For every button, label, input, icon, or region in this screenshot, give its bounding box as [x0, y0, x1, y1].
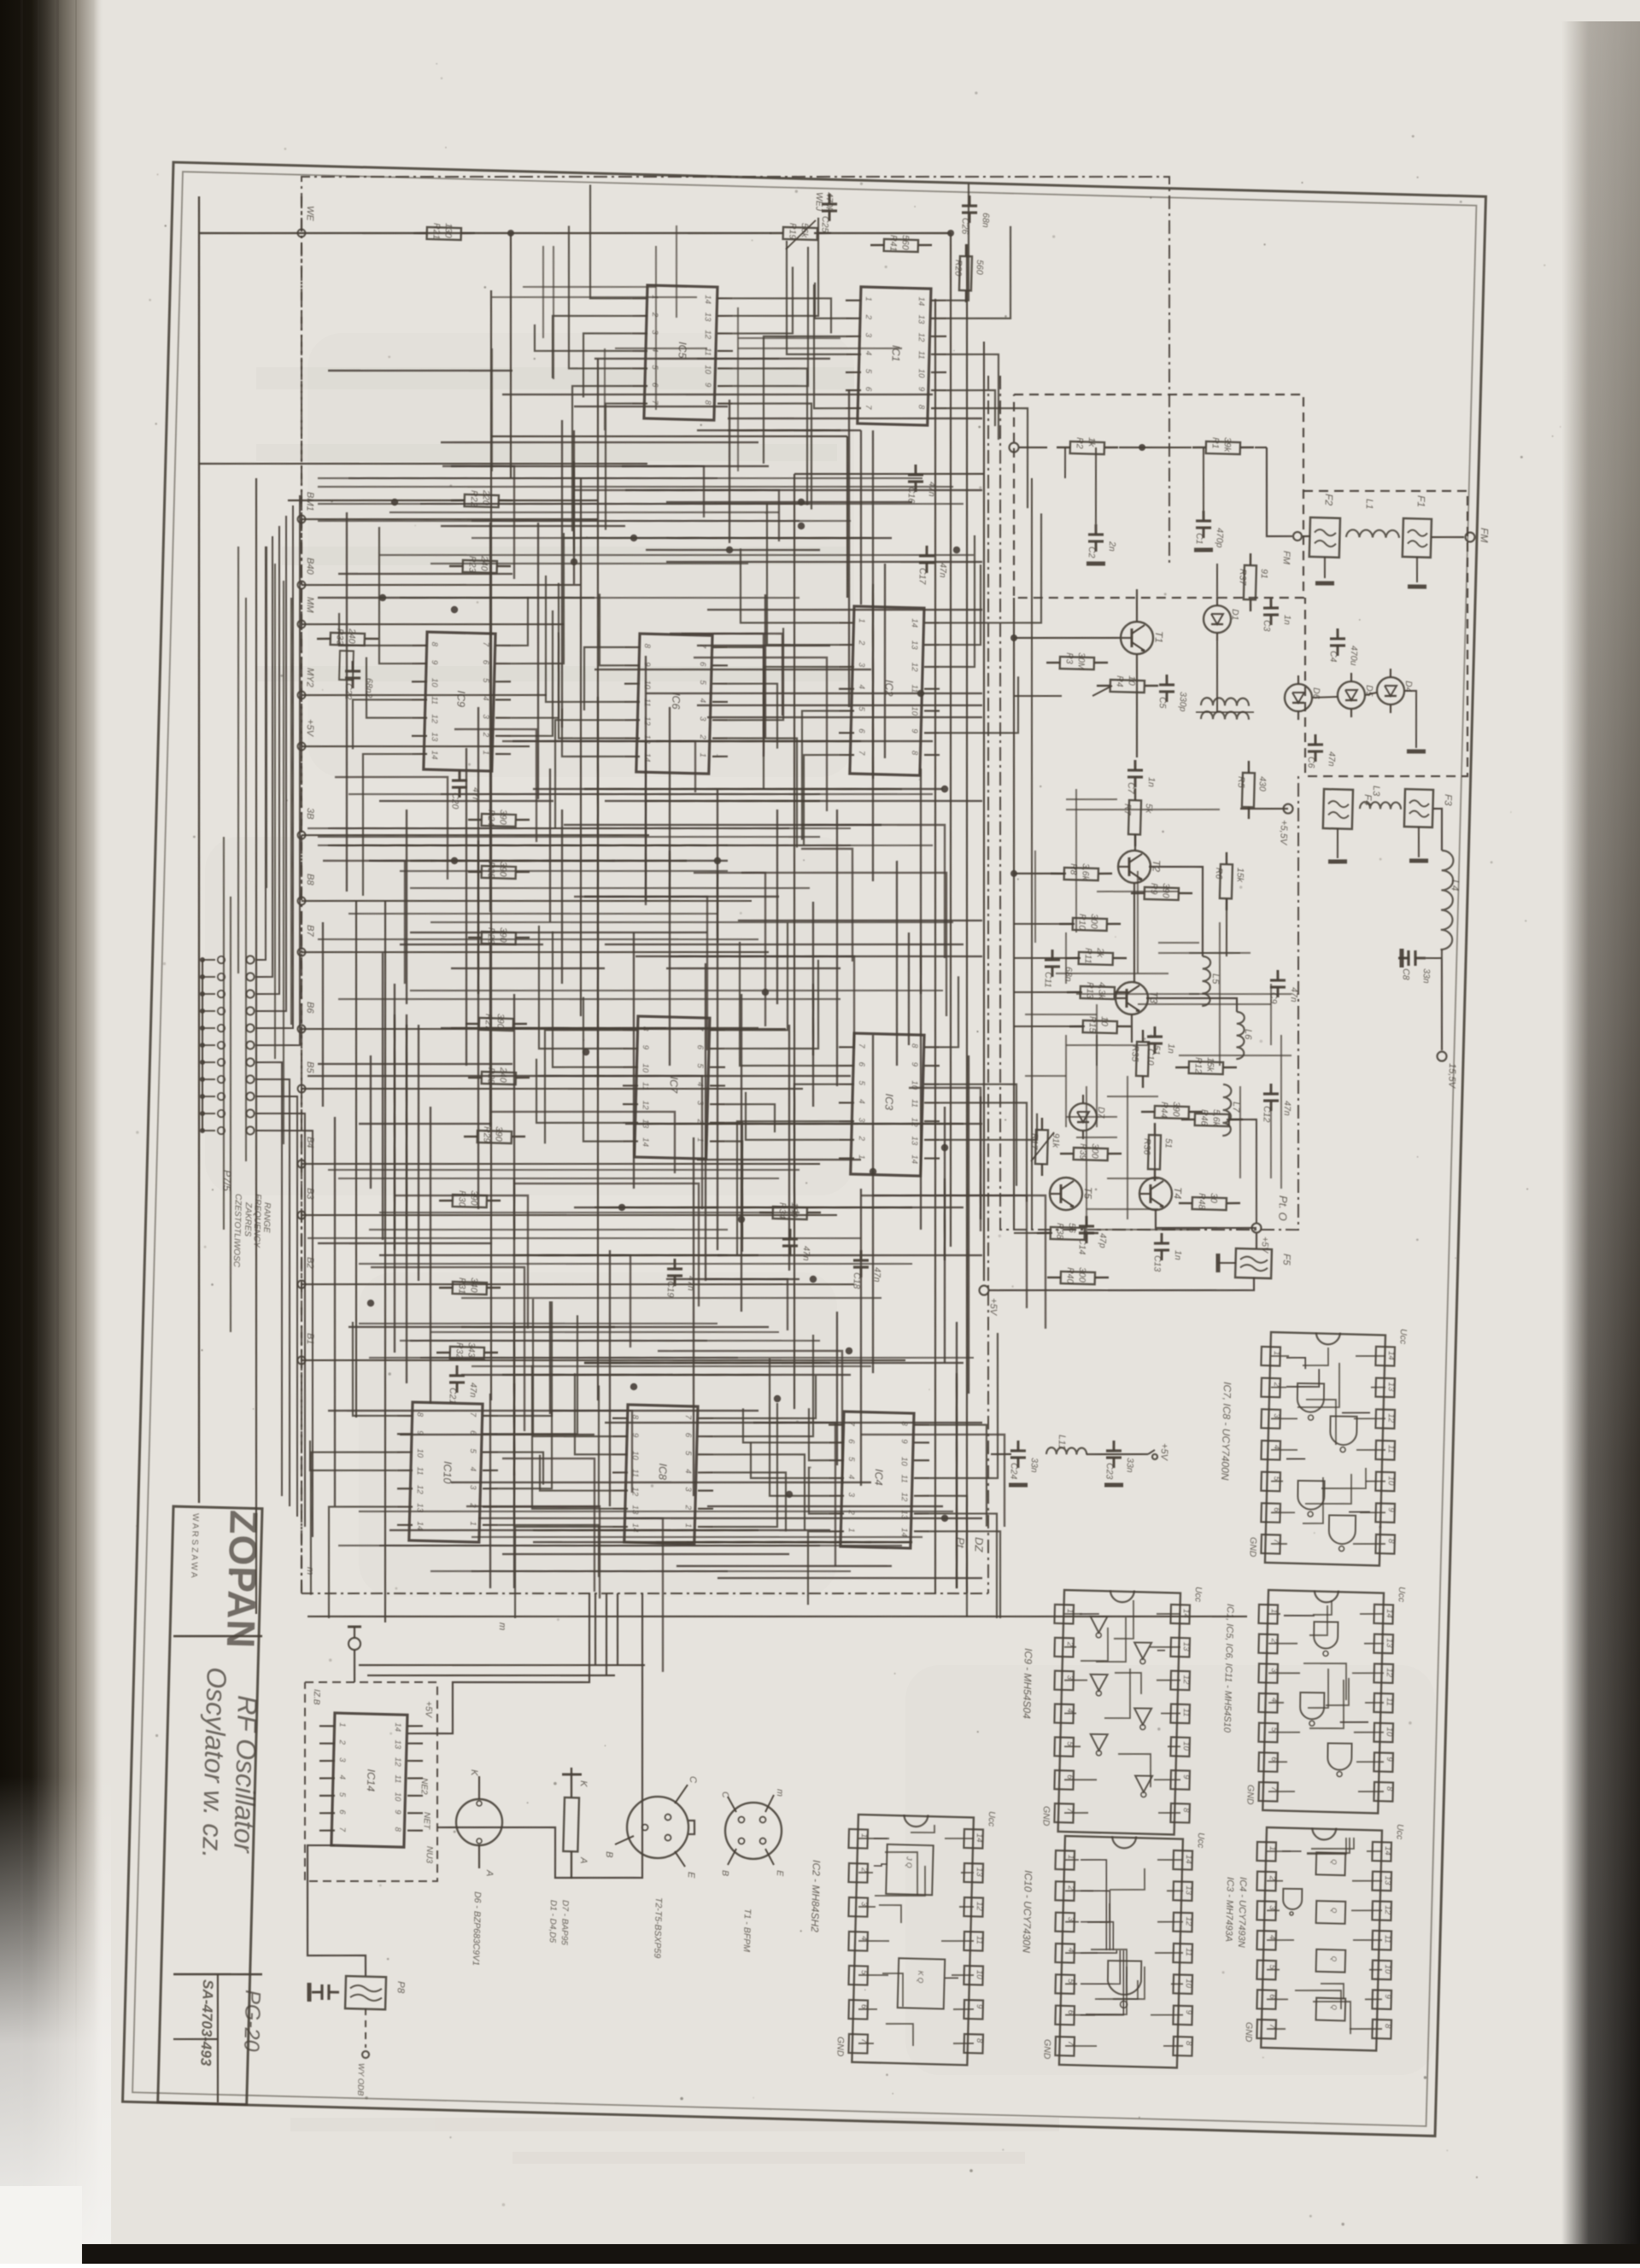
svg-text:14: 14: [641, 1137, 650, 1147]
svg-text:IC3 - MH7493A: IC3 - MH7493A: [1223, 1877, 1235, 1942]
svg-text:14: 14: [1184, 1855, 1193, 1864]
svg-text:1k: 1k: [1086, 437, 1097, 447]
svg-text:11: 11: [393, 1774, 402, 1783]
svg-text:10: 10: [917, 369, 926, 379]
svg-text:1: 1: [846, 1528, 856, 1533]
svg-text:R4: R4: [1115, 675, 1125, 687]
svg-text:Ucc: Ucc: [1397, 1329, 1408, 1345]
svg-text:C13: C13: [1151, 1255, 1163, 1272]
svg-text:C: C: [720, 1792, 730, 1798]
svg-text:R11: R11: [1082, 948, 1092, 964]
svg-text:R36: R36: [1141, 1138, 1152, 1155]
svg-text:IC14: IC14: [365, 1768, 378, 1792]
svg-text:3B: 3B: [305, 808, 315, 820]
svg-text:9: 9: [1181, 1774, 1191, 1780]
svg-text:9: 9: [703, 383, 712, 388]
svg-text:4: 4: [481, 696, 490, 701]
svg-text:IZ.B: IZ.B: [312, 1689, 321, 1705]
svg-text:9: 9: [975, 2004, 984, 2009]
svg-text:GND: GND: [1243, 2022, 1254, 2043]
svg-text:R44: R44: [1159, 1102, 1170, 1119]
svg-text:13: 13: [630, 1505, 640, 1515]
svg-text:7: 7: [481, 642, 490, 647]
svg-text:C17: C17: [917, 568, 928, 586]
svg-text:R40: R40: [1064, 1267, 1075, 1284]
svg-text:A: A: [578, 1856, 589, 1864]
svg-text:3: 3: [857, 1118, 866, 1123]
svg-text:Ucc: Ucc: [1193, 1587, 1204, 1603]
svg-text:8: 8: [917, 405, 926, 410]
svg-text:4: 4: [683, 1469, 693, 1474]
svg-text:Q: Q: [1330, 1956, 1338, 1961]
svg-text:2: 2: [481, 732, 490, 738]
svg-text:560: 560: [975, 260, 985, 275]
svg-text:10: 10: [910, 706, 919, 716]
svg-text:11: 11: [899, 1475, 909, 1483]
svg-text:6: 6: [846, 1439, 856, 1444]
svg-text:11: 11: [415, 1467, 425, 1476]
svg-text:7: 7: [650, 400, 659, 405]
svg-text:MM: MM: [304, 597, 314, 613]
svg-text:R34: R34: [777, 1202, 788, 1219]
svg-text:1: 1: [1065, 1609, 1075, 1614]
svg-text:10: 10: [641, 1063, 650, 1073]
svg-text:13: 13: [1386, 1382, 1396, 1393]
svg-text:14: 14: [393, 1722, 402, 1732]
svg-text:14: 14: [899, 1528, 909, 1537]
svg-text:1: 1: [864, 296, 873, 301]
svg-text:14: 14: [917, 296, 926, 306]
svg-text:IC1: IC1: [889, 345, 902, 362]
svg-text:1n: 1n: [1166, 1043, 1176, 1054]
svg-text:300: 300: [1090, 1143, 1100, 1159]
svg-text:L4: L4: [1450, 880, 1461, 891]
svg-text:C22: C22: [343, 683, 354, 700]
svg-text:390: 390: [498, 927, 508, 943]
svg-text:J Q: J Q: [905, 1856, 913, 1868]
svg-text:14: 14: [910, 618, 919, 628]
svg-text:NE2: NE2: [419, 1778, 429, 1795]
svg-text:IC10: IC10: [441, 1461, 454, 1484]
svg-text:6: 6: [695, 1045, 705, 1050]
svg-text:91: 91: [1259, 569, 1269, 579]
svg-text:C11: C11: [1043, 972, 1053, 988]
svg-text:L3: L3: [1371, 786, 1381, 797]
svg-text:C8: C8: [1401, 968, 1411, 980]
svg-text:2k: 2k: [1095, 947, 1105, 958]
svg-text:B: B: [720, 1870, 730, 1876]
svg-text:10: 10: [975, 1970, 984, 1980]
svg-text:7: 7: [683, 1415, 693, 1420]
svg-text:33n: 33n: [1125, 1458, 1135, 1473]
svg-text:R13: R13: [1085, 982, 1096, 999]
svg-text:IC2 - MH84SH2: IC2 - MH84SH2: [809, 1860, 823, 1932]
svg-text:13: 13: [1181, 1642, 1191, 1652]
svg-text:13: 13: [393, 1739, 402, 1750]
svg-text:39k: 39k: [1222, 437, 1233, 453]
svg-text:B40: B40: [304, 558, 315, 576]
svg-text:T1: T1: [1153, 631, 1165, 643]
svg-text:10: 10: [1383, 1965, 1392, 1975]
svg-text:F1: F1: [1415, 495, 1427, 507]
svg-text:SA-4703-493: SA-4703-493: [197, 1979, 216, 2066]
svg-text:C6: C6: [1306, 757, 1316, 769]
svg-text:13: 13: [1385, 1639, 1394, 1649]
svg-text:RF Oscillator: RF Oscillator: [228, 1695, 263, 1855]
svg-text:12: 12: [910, 1118, 919, 1128]
svg-text:WY ODB: WY ODB: [355, 2063, 366, 2096]
svg-text:12: 12: [917, 333, 926, 343]
svg-text:P8: P8: [395, 1981, 406, 1994]
svg-text:Q: Q: [1330, 1859, 1338, 1864]
svg-text:+5V: +5V: [1259, 1236, 1270, 1254]
svg-text:4: 4: [1272, 1445, 1281, 1450]
svg-text:1n: 1n: [1146, 777, 1157, 787]
svg-text:RANGE: RANGE: [261, 1202, 272, 1233]
svg-text:10: 10: [1386, 1476, 1396, 1487]
svg-text:+5V: +5V: [304, 719, 315, 738]
svg-text:W A R S Z A W A: W A R S Z A W A: [189, 1513, 200, 1578]
svg-text:9: 9: [1386, 1507, 1396, 1512]
svg-text:5: 5: [857, 1080, 866, 1085]
svg-text:IC4 - UCY7493N: IC4 - UCY7493N: [1236, 1877, 1248, 1948]
svg-text:m: m: [305, 1567, 315, 1575]
svg-text:IC4: IC4: [872, 1469, 885, 1486]
svg-text:47n: 47n: [801, 1246, 811, 1261]
svg-text:R20: R20: [953, 260, 964, 277]
svg-text:130: 130: [443, 223, 454, 238]
svg-text:9: 9: [430, 660, 439, 665]
svg-text:C5: C5: [1157, 697, 1168, 709]
svg-text:R41: R41: [887, 235, 899, 252]
svg-text:L1: L1: [1364, 499, 1374, 510]
svg-text:2: 2: [857, 1135, 866, 1141]
svg-text:12: 12: [1184, 1917, 1193, 1927]
svg-text:GND: GND: [1245, 1785, 1256, 1805]
svg-text:30M: 30M: [1075, 652, 1086, 670]
svg-text:13: 13: [917, 315, 926, 325]
svg-text:15,5V: 15,5V: [1446, 1063, 1457, 1090]
svg-text:IC7: IC7: [667, 1076, 680, 1094]
svg-text:6: 6: [698, 662, 707, 667]
svg-text:E: E: [686, 1872, 696, 1879]
svg-text:F2: F2: [1323, 494, 1335, 506]
svg-text:47n: 47n: [468, 1382, 478, 1398]
svg-text:11: 11: [1181, 1708, 1191, 1716]
svg-text:GND: GND: [835, 2037, 846, 2057]
svg-text:390: 390: [1161, 883, 1171, 898]
svg-text:6: 6: [857, 728, 866, 734]
svg-text:7: 7: [468, 1412, 477, 1417]
svg-text:4: 4: [1268, 1935, 1277, 1940]
svg-text:8: 8: [415, 1412, 425, 1417]
svg-text:CZESTOTLIWOSC: CZESTOTLIWOSC: [231, 1194, 243, 1268]
svg-text:14: 14: [975, 1833, 984, 1843]
svg-text:14: 14: [1385, 1609, 1394, 1618]
svg-text:10: 10: [642, 680, 652, 690]
svg-text:R2: R2: [1075, 437, 1085, 449]
svg-text:T1 - BFPM: T1 - BFPM: [741, 1909, 753, 1952]
svg-text:33n: 33n: [1028, 1458, 1039, 1473]
svg-text:11: 11: [917, 351, 926, 359]
svg-text:14: 14: [1181, 1609, 1191, 1618]
svg-text:15k: 15k: [1235, 868, 1245, 883]
svg-text:R5: R5: [1236, 776, 1246, 788]
svg-text:5: 5: [846, 1457, 856, 1462]
svg-text:K: K: [469, 1769, 479, 1776]
svg-text:R33: R33: [334, 628, 345, 646]
svg-text:11: 11: [1184, 1948, 1193, 1956]
svg-text:14: 14: [1386, 1351, 1396, 1360]
svg-text:14: 14: [703, 295, 712, 304]
svg-text:13: 13: [1383, 1876, 1392, 1886]
svg-text:K Q: K Q: [917, 1971, 925, 1984]
svg-text:BM1: BM1: [304, 492, 315, 511]
svg-text:B6: B6: [305, 1002, 315, 1014]
svg-text:m: m: [775, 1789, 785, 1797]
svg-text:4: 4: [864, 351, 873, 356]
svg-text:390: 390: [1171, 1102, 1181, 1117]
svg-text:Ucc: Ucc: [1394, 1824, 1404, 1840]
svg-text:2: 2: [864, 314, 873, 320]
svg-text:Ucc: Ucc: [1397, 1587, 1407, 1603]
svg-text:3: 3: [695, 1101, 705, 1106]
svg-text:R6: R6: [1214, 868, 1224, 880]
svg-text:1: 1: [337, 1722, 347, 1727]
svg-text:3: 3: [846, 1493, 856, 1498]
svg-text:13: 13: [642, 734, 652, 745]
svg-text:R19: R19: [787, 223, 798, 240]
svg-text:8: 8: [703, 400, 712, 405]
svg-text:4: 4: [1269, 1698, 1279, 1703]
svg-text:IC8: IC8: [657, 1463, 670, 1480]
svg-text:L6: L6: [1243, 1029, 1253, 1040]
svg-text:K: K: [578, 1780, 589, 1787]
svg-text:WEJ: WEJ: [813, 192, 824, 212]
svg-text:2: 2: [698, 734, 707, 739]
svg-text:R32: R32: [454, 1342, 465, 1359]
svg-text:Oscylator w. cz.: Oscylator w. cz.: [196, 1667, 232, 1859]
svg-text:13: 13: [910, 640, 919, 651]
svg-text:1: 1: [1272, 1351, 1281, 1356]
svg-text:9: 9: [910, 728, 919, 734]
svg-text:R9: R9: [1149, 883, 1159, 895]
svg-text:Pt. O: Pt. O: [1276, 1195, 1290, 1221]
svg-text:6: 6: [650, 383, 659, 388]
svg-text:8: 8: [430, 642, 439, 647]
svg-text:10: 10: [1099, 1016, 1110, 1026]
svg-text:300: 300: [1077, 1267, 1087, 1283]
svg-text:13: 13: [1184, 1885, 1193, 1896]
svg-text:6: 6: [864, 387, 873, 392]
svg-text:R38: R38: [1054, 1223, 1065, 1240]
svg-text:5: 5: [864, 369, 873, 374]
svg-text:3: 3: [864, 333, 873, 338]
svg-text:C: C: [688, 1776, 698, 1783]
svg-text:47n: 47n: [1282, 1101, 1292, 1116]
svg-text:68n: 68n: [981, 213, 991, 228]
svg-text:R1: R1: [1210, 437, 1221, 449]
svg-text:R21: R21: [431, 223, 442, 240]
svg-text:C2: C2: [1086, 547, 1097, 558]
svg-text:390: 390: [494, 1126, 504, 1142]
svg-text:10: 10: [1184, 1979, 1193, 1989]
svg-text:14: 14: [642, 753, 652, 763]
svg-text:9: 9: [899, 1439, 909, 1444]
svg-text:12: 12: [899, 1493, 909, 1503]
svg-text:3: 3: [650, 330, 659, 335]
svg-text:9: 9: [1385, 1757, 1394, 1762]
svg-text:C21: C21: [447, 1388, 458, 1405]
svg-text:C1: C1: [1194, 533, 1204, 545]
svg-text:7: 7: [864, 405, 873, 410]
svg-text:1n: 1n: [1282, 615, 1292, 625]
svg-text:12: 12: [415, 1485, 425, 1495]
svg-text:4: 4: [337, 1774, 347, 1780]
svg-text:12: 12: [1383, 1905, 1392, 1915]
svg-text:8: 8: [393, 1827, 402, 1832]
svg-text:Ucc: Ucc: [1196, 1833, 1206, 1849]
svg-text:3: 3: [857, 663, 866, 668]
svg-text:2: 2: [857, 640, 866, 646]
svg-text:390: 390: [498, 862, 508, 877]
svg-text:11: 11: [1383, 1935, 1392, 1944]
svg-text:D1 - D4,D5: D1 - D4,D5: [548, 1900, 558, 1944]
svg-text:13: 13: [910, 1136, 919, 1146]
svg-text:4: 4: [846, 1475, 856, 1480]
svg-text:11: 11: [1386, 1445, 1396, 1453]
svg-text:14: 14: [1383, 1846, 1392, 1856]
svg-text:PG-20: PG-20: [239, 1990, 265, 2052]
svg-text:NU3: NU3: [425, 1846, 435, 1864]
svg-text:4,3k: 4,3k: [1096, 982, 1107, 1000]
svg-text:14: 14: [415, 1522, 425, 1531]
svg-text:D1: D1: [1230, 609, 1240, 621]
svg-text:14: 14: [910, 1154, 919, 1164]
svg-text:10: 10: [899, 1457, 909, 1467]
svg-text:10: 10: [1385, 1727, 1394, 1738]
svg-text:GND: GND: [1247, 1537, 1258, 1558]
svg-text:470u: 470u: [1348, 646, 1359, 666]
svg-text:12: 12: [703, 330, 712, 340]
svg-text:C3: C3: [1262, 620, 1272, 632]
svg-text:4: 4: [1065, 1708, 1075, 1713]
svg-text:GND: GND: [1041, 2039, 1052, 2060]
svg-text:2: 2: [337, 1739, 347, 1745]
svg-text:R31: R31: [456, 1277, 467, 1295]
svg-text:11: 11: [430, 696, 439, 704]
svg-text:1: 1: [1269, 1609, 1279, 1614]
svg-text:12: 12: [975, 1902, 984, 1912]
svg-text:240: 240: [498, 1067, 508, 1083]
svg-text:DZ: DZ: [973, 1537, 986, 1553]
svg-text:10: 10: [430, 678, 439, 688]
svg-text:300: 300: [1089, 914, 1099, 929]
svg-text:10: 10: [1181, 1741, 1191, 1751]
svg-text:4: 4: [857, 1099, 866, 1104]
svg-text:11: 11: [910, 1099, 919, 1108]
svg-text:FM: FM: [1479, 528, 1491, 543]
svg-text:R8: R8: [1069, 863, 1079, 875]
svg-text:+5V: +5V: [1158, 1443, 1169, 1462]
svg-text:9: 9: [641, 1045, 650, 1050]
svg-text:8: 8: [642, 644, 652, 649]
svg-text:343: 343: [466, 1342, 477, 1358]
svg-text:MY2: MY2: [304, 668, 315, 687]
svg-text:10: 10: [1127, 675, 1137, 686]
svg-text:Q: Q: [1330, 2004, 1338, 2009]
svg-text:C26: C26: [959, 218, 970, 235]
svg-text:IC9 - MH54S04: IC9 - MH54S04: [1021, 1648, 1034, 1719]
svg-text:6: 6: [481, 660, 490, 665]
svg-text:+5V: +5V: [423, 1701, 434, 1718]
svg-text:R48: R48: [1197, 1193, 1208, 1210]
svg-text:R35: R35: [1129, 1045, 1140, 1062]
svg-text:1n: 1n: [1173, 1250, 1183, 1260]
svg-text:B1: B1: [305, 1333, 315, 1345]
svg-text:1: 1: [857, 618, 866, 623]
svg-text:F3: F3: [1443, 794, 1453, 806]
svg-text:C19: C19: [665, 1281, 676, 1298]
svg-text:T5: T5: [1082, 1187, 1094, 1200]
svg-text:2: 2: [1066, 1885, 1075, 1891]
svg-text:F5: F5: [1281, 1254, 1291, 1266]
svg-text:330p: 330p: [1177, 692, 1188, 712]
svg-text:FM: FM: [1281, 551, 1291, 565]
svg-text:GND: GND: [1040, 1806, 1051, 1827]
svg-text:NET: NET: [421, 1812, 431, 1830]
svg-text:9: 9: [642, 662, 652, 667]
svg-text:T2-T5-BSXP59: T2-T5-BSXP59: [652, 1897, 664, 1959]
svg-text:470p: 470p: [1214, 528, 1225, 548]
svg-text:9: 9: [917, 387, 926, 392]
svg-text:10: 10: [415, 1448, 425, 1458]
svg-text:4: 4: [859, 1936, 869, 1941]
svg-text:L11: L11: [1057, 1435, 1067, 1450]
svg-text:1: 1: [481, 751, 490, 756]
svg-text:47p: 47p: [1098, 1233, 1108, 1248]
svg-text:IC10 - UCY7430N: IC10 - UCY7430N: [1020, 1870, 1034, 1953]
svg-text:14: 14: [430, 751, 439, 760]
svg-text:430: 430: [1257, 776, 1268, 792]
svg-text:1: 1: [859, 1833, 869, 1838]
svg-text:B4: B4: [305, 1137, 315, 1149]
svg-text:12: 12: [641, 1101, 650, 1111]
svg-text:C10: C10: [1145, 1049, 1157, 1066]
svg-text:1: 1: [695, 1137, 705, 1143]
svg-text:4: 4: [1066, 1948, 1075, 1953]
svg-text:13: 13: [975, 1868, 984, 1878]
svg-text:30: 30: [1209, 1193, 1219, 1203]
svg-text:390: 390: [498, 810, 508, 825]
svg-text:4: 4: [695, 1082, 705, 1087]
svg-text:A: A: [484, 1869, 495, 1877]
svg-text:4: 4: [468, 1467, 477, 1472]
svg-text:12: 12: [430, 714, 439, 724]
svg-text:R30: R30: [456, 1190, 467, 1207]
svg-text:3,6k: 3,6k: [1080, 863, 1091, 881]
svg-text:B8: B8: [305, 874, 315, 886]
svg-text:4: 4: [857, 684, 866, 689]
svg-text:C23: C23: [1104, 1463, 1115, 1480]
svg-text:1: 1: [1268, 1846, 1277, 1851]
svg-text:m: m: [497, 1622, 507, 1630]
svg-text:5k: 5k: [1144, 804, 1154, 814]
svg-text:C24: C24: [1008, 1463, 1019, 1480]
svg-text:560: 560: [900, 235, 911, 250]
svg-text:R46: R46: [1199, 1109, 1210, 1126]
svg-text:10: 10: [393, 1792, 402, 1803]
